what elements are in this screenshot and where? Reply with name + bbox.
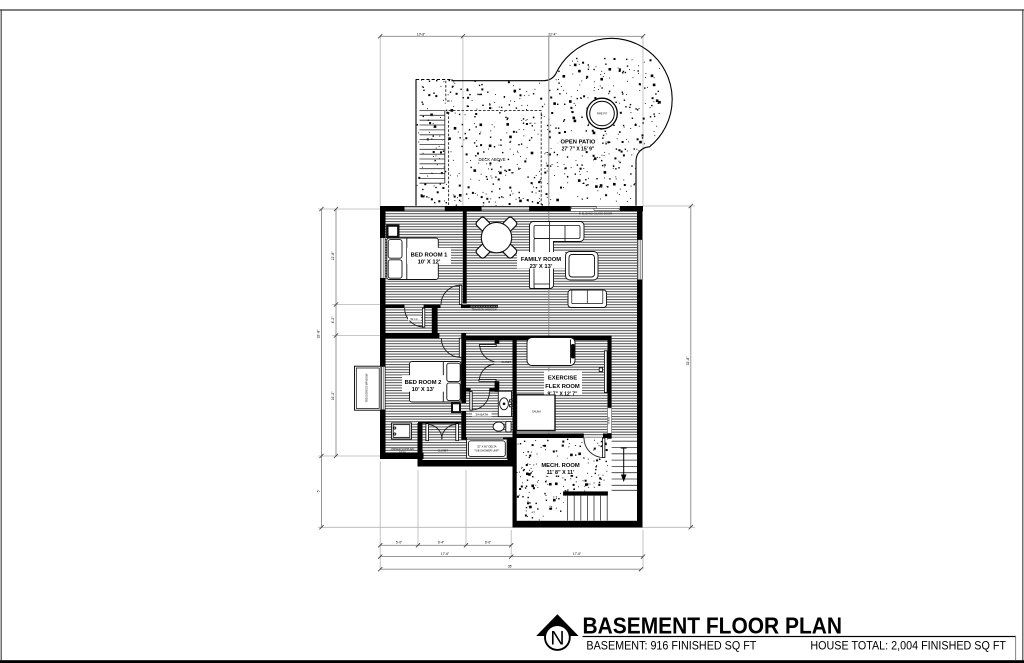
svg-text:32’-8”: 32’-8” — [686, 357, 690, 366]
svg-text:11’ 8” X 11’: 11’ 8” X 11’ — [547, 470, 575, 476]
svg-text:6’-4”: 6’-4” — [438, 541, 444, 545]
svg-text:MECH. ROOM: MECH. ROOM — [541, 463, 579, 469]
svg-text:9’ 7” X 12’ 7”: 9’ 7” X 12’ 7” — [547, 392, 578, 398]
svg-text:10’-8”: 10’-8” — [417, 32, 425, 36]
svg-text:17’-6”: 17’-6” — [573, 552, 581, 556]
svg-text:17’-6”: 17’-6” — [441, 552, 449, 556]
svg-text:23’ X 13’: 23’ X 13’ — [530, 264, 553, 270]
svg-text:FLEX ROOM: FLEX ROOM — [545, 384, 580, 390]
svg-text:27’ 7” X 15’ 9”: 27’ 7” X 15’ 9” — [562, 147, 595, 153]
svg-text:35’: 35’ — [508, 565, 513, 569]
svg-text:10’ X 13’: 10’ X 13’ — [412, 387, 435, 393]
svg-text:4’-2”: 4’-2” — [331, 317, 335, 324]
svg-text:5’-0”: 5’-0” — [396, 541, 402, 545]
svg-text:HOUSE TOTAL: 2,004 FINISHED SQ: HOUSE TOTAL: 2,004 FINISHED SQ FT — [810, 638, 1006, 652]
svg-text:16’-2”: 16’-2” — [331, 392, 335, 401]
svg-text:3/4 BATH: 3/4 BATH — [475, 413, 488, 417]
svg-text:FIRE PIT: FIRE PIT — [597, 113, 608, 116]
svg-text:N: N — [550, 628, 564, 650]
svg-text:BED ROOM 2: BED ROOM 2 — [405, 380, 442, 386]
svg-text:10’ X 12’: 10’ X 12’ — [418, 260, 441, 266]
svg-text:22’-4”: 22’-4” — [548, 32, 556, 36]
svg-text:OPEN PATIO: OPEN PATIO — [561, 140, 596, 146]
svg-text:BASEMENT: 916 FINISHED SQ FT: BASEMENT: 916 FINISHED SQ FT — [586, 638, 756, 652]
svg-text:12’-8”: 12’-8” — [331, 252, 335, 261]
svg-text:EXERCISE: EXERCISE — [548, 376, 577, 382]
svg-text:FAMILY ROOM: FAMILY ROOM — [521, 257, 561, 263]
svg-text:DECK ABOVE: DECK ABOVE — [479, 157, 506, 162]
svg-text:W.I.C.: W.I.C. — [410, 317, 418, 321]
svg-text:CLOSET: CLOSET — [502, 361, 512, 364]
svg-text:8’ SLIDING GLASS DOOR: 8’ SLIDING GLASS DOOR — [579, 212, 612, 216]
svg-text:6’-0”: 6’-0” — [485, 541, 491, 545]
svg-text:32’-8”: 32’-8” — [317, 330, 321, 339]
svg-text:BED ROOM 1: BED ROOM 1 — [411, 252, 448, 258]
svg-text:5’: 5’ — [317, 489, 321, 492]
svg-text:BASEMENT FLOOR PLAN: BASEMENT FLOOR PLAN — [583, 613, 843, 639]
